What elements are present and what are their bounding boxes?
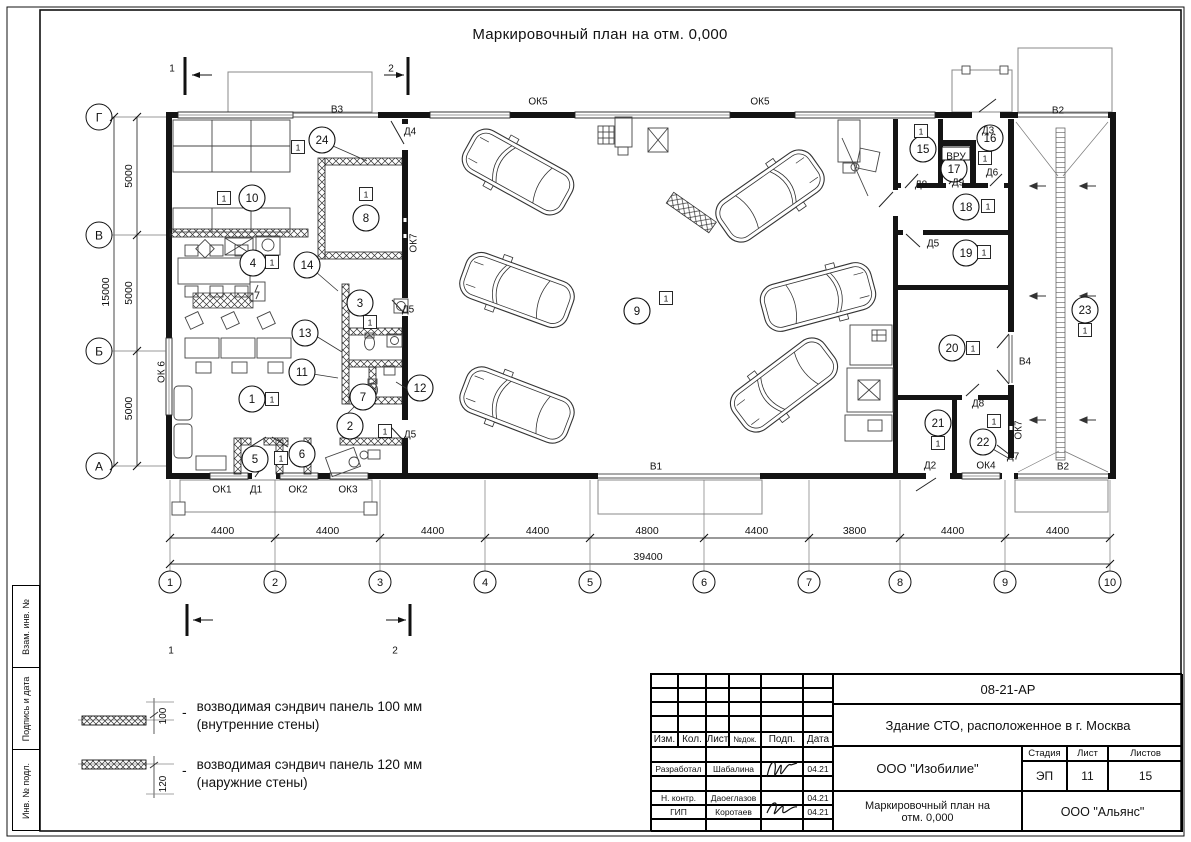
dim-value: 4400 (941, 525, 965, 537)
legend: 100 - возводимая сэндвич панель 100 мм (… (78, 694, 508, 814)
room-number: 15 (917, 144, 930, 156)
row-name: Даоеглазов (706, 791, 761, 805)
grid-bubble-number: 7 (806, 577, 812, 589)
grid-bubble-number: 9 (1002, 577, 1008, 589)
dim-value: 4400 (421, 525, 445, 537)
legend-item: 120 - возводимая сэндвич панель 120 мм (… (78, 752, 508, 802)
row-date: 04.21 (803, 762, 833, 776)
room-type-badge-number: 1 (279, 454, 284, 464)
plan-label: 1 (169, 64, 175, 75)
plan-label: Д5 (404, 430, 417, 441)
room-number: 7 (360, 392, 366, 404)
plan-label: Д1 (250, 485, 263, 496)
title-block: Изм. Кол. Лист №док. Подп. Дата Разработ… (650, 673, 1182, 831)
grid-and-dimensions: 1440024400344004440054800644007380084400… (86, 104, 1121, 593)
room-type-badge-number: 1 (368, 318, 373, 328)
plan-label: Д5 (927, 239, 940, 250)
room-number: 22 (977, 437, 990, 449)
dim-value: 5000 (123, 281, 135, 305)
row-role: ГИП (651, 805, 706, 819)
grid-bubble-number: 1 (167, 577, 173, 589)
plan-label: Д7 (1007, 452, 1020, 463)
dim-total-value: 15000 (100, 277, 112, 306)
drawing-sheet: 1440024400344004440054800644007380084400… (0, 0, 1191, 842)
side-stamp-label: Подпись и дата (21, 676, 31, 741)
room-number: 6 (299, 449, 305, 461)
room-type-badge-number: 1 (986, 202, 991, 212)
room-number: 3 (357, 298, 363, 310)
plan-label: Д9 (952, 178, 965, 189)
drawing-name: Маркировочный план на отм. 0,000 (833, 791, 1022, 832)
car-lift-ramp (666, 192, 716, 232)
org-contractor: ООО "Альянс" (1022, 791, 1183, 832)
plan-label: Д5 (402, 305, 415, 316)
room-number: 17 (948, 164, 961, 176)
cars (453, 119, 880, 452)
dim-value: 4400 (211, 525, 235, 537)
grid-bubble-number: 2 (272, 577, 278, 589)
dim-value: 5000 (123, 164, 135, 188)
room-number: 24 (316, 135, 329, 147)
room-number: 19 (960, 248, 973, 260)
stage-label: Стадия (1022, 746, 1067, 761)
plan-label: Д8 (915, 180, 928, 191)
room-number: 1 (249, 394, 255, 406)
panel-120-symbol: 120 (78, 752, 178, 802)
grid-bubble-number: 4 (482, 577, 488, 589)
room-number: 5 (252, 454, 258, 466)
row-role: Н. контр. (651, 791, 706, 805)
plan-label: ОК3 (338, 485, 358, 496)
grid-bubble-letter: А (95, 460, 103, 474)
sheet-label: Лист (1067, 746, 1108, 761)
room-type-badge-number: 1 (296, 143, 301, 153)
room-number: 18 (960, 202, 973, 214)
plan-label: ОК7 (1014, 420, 1025, 440)
dim-value: 3800 (843, 525, 867, 537)
room-type-badge-number: 1 (971, 344, 976, 354)
row-role: Разработал (651, 762, 706, 776)
dim-value: 5000 (123, 397, 135, 421)
plan-label: В4 (1019, 357, 1032, 368)
plan-label: ОК7 (409, 233, 420, 253)
dim-value: 4400 (745, 525, 769, 537)
room-type-badge-number: 1 (664, 294, 669, 304)
room-type-badge-number: 1 (936, 439, 941, 449)
panel-120-dim: 120 (158, 775, 169, 792)
col-podp: Подп. (761, 732, 803, 747)
plan-label: ОК 6 (157, 361, 168, 383)
row-date: 04.21 (803, 805, 833, 819)
panel-100-dim: 100 (158, 707, 169, 724)
plan-label: Д3 (982, 126, 995, 137)
plan-label: 2 (388, 64, 394, 75)
side-stamp-cell: Взам. инв. № (13, 586, 39, 668)
room-type-badge-number: 1 (383, 427, 388, 437)
plan-label: ОК1 (212, 485, 232, 496)
side-stamp-label: Инв. № подл. (21, 763, 31, 819)
sheets-label: Листов (1108, 746, 1183, 761)
plan-label: В2 (1057, 462, 1070, 473)
page-title: Маркировочный план на отм. 0,000 (400, 26, 800, 43)
grid-bubble-number: 10 (1104, 577, 1116, 589)
room-number: 14 (301, 260, 314, 272)
legend-text: возводимая сэндвич панель 100 мм (внутре… (197, 698, 423, 734)
plan-label: В1 (650, 462, 663, 473)
grid-bubble-letter: Б (95, 345, 103, 359)
grid-bubble-number: 6 (701, 577, 707, 589)
room-number: 2 (347, 421, 353, 433)
dim-value: 4800 (635, 525, 659, 537)
room-type-badge-number: 1 (364, 190, 369, 200)
col-data: Дата (803, 732, 833, 747)
room-number: 21 (932, 418, 945, 430)
col-kol: Кол. (678, 732, 706, 747)
dim-value: 4400 (316, 525, 340, 537)
room-number: 23 (1079, 305, 1092, 317)
plan-label: Д2 (924, 461, 937, 472)
room-type-badge-number: 1 (222, 194, 227, 204)
room-number: 11 (296, 367, 308, 379)
doc-number: 08-21-АР (833, 674, 1183, 704)
sheets-value: 15 (1108, 761, 1183, 791)
sheet-value: 11 (1067, 761, 1108, 791)
plan-label: 1 (168, 646, 174, 657)
room-type-badge-number: 1 (1083, 326, 1088, 336)
panel-100-symbol: 100 (78, 694, 178, 740)
project-name: Здание СТО, расположенное в г. Москва (833, 704, 1183, 746)
legend-dash: - (182, 762, 187, 778)
side-stamp-cell: Подпись и дата (13, 668, 39, 750)
side-stamp-label: Взам. инв. № (21, 599, 31, 655)
room-type-badge-number: 1 (270, 395, 275, 405)
room-number: 10 (246, 193, 259, 205)
grid-bubble-letter: Г (96, 111, 103, 125)
org-designer: ООО "Изобилие" (833, 746, 1022, 791)
dim-total-value: 39400 (633, 551, 662, 563)
row-date: 04.21 (803, 791, 833, 805)
office-furniture (173, 120, 408, 477)
plan-label: В3 (331, 105, 344, 116)
legend-item: 100 - возводимая сэндвич панель 100 мм (… (78, 694, 508, 740)
wash-bay-details (1016, 122, 1108, 472)
room-type-badge-number: 1 (270, 258, 275, 268)
row-name: Шабалина (706, 762, 761, 776)
plan-label: ОК2 (288, 485, 308, 496)
row-name: Коротаев (706, 805, 761, 819)
room-type-badge-number: 1 (992, 417, 997, 427)
side-stamp-cell: Инв. № подл. (13, 750, 39, 832)
plan-label: ОК4 (976, 461, 996, 472)
col-izm: Изм. (651, 732, 678, 747)
room-number: 8 (363, 213, 369, 225)
grid-bubble-number: 5 (587, 577, 593, 589)
room-type-badge-number: 1 (919, 127, 924, 137)
room-markers: 1121314151678191101111213141511611718119… (218, 125, 1099, 473)
plan-label: Д4 (404, 127, 417, 138)
grid-bubble-number: 8 (897, 577, 903, 589)
room-number: 4 (250, 258, 257, 270)
revision-grid (651, 674, 833, 732)
room-number: 9 (634, 306, 640, 318)
dim-value: 4400 (1046, 525, 1070, 537)
plan-label: Д8 (972, 399, 985, 410)
grid-bubble-number: 3 (377, 577, 383, 589)
grid-bubble-letter: В (95, 229, 103, 243)
room-number: 13 (299, 328, 312, 340)
plan-label: ОК5 (528, 97, 548, 108)
plan-label: 2 (392, 646, 398, 657)
col-list: Лист (706, 732, 729, 747)
plan-label: ВРУ (946, 152, 966, 163)
plan-label: ОК5 (750, 97, 770, 108)
plan-label: В2 (1052, 106, 1065, 117)
room-number: 20 (946, 343, 959, 355)
room-type-badge-number: 1 (983, 154, 988, 164)
plan-label: Д6 (986, 168, 999, 179)
col-ndok: №док. (729, 732, 761, 747)
stage-value: ЭП (1022, 761, 1067, 791)
room-number: 12 (414, 383, 427, 395)
dim-value: 4400 (526, 525, 550, 537)
legend-dash: - (182, 704, 187, 720)
legend-text: возводимая сэндвич панель 120 мм (наружн… (197, 756, 423, 792)
room-type-badge-number: 1 (982, 248, 987, 258)
side-stamp: Взам. инв. № Подпись и дата Инв. № подл. (12, 585, 40, 831)
